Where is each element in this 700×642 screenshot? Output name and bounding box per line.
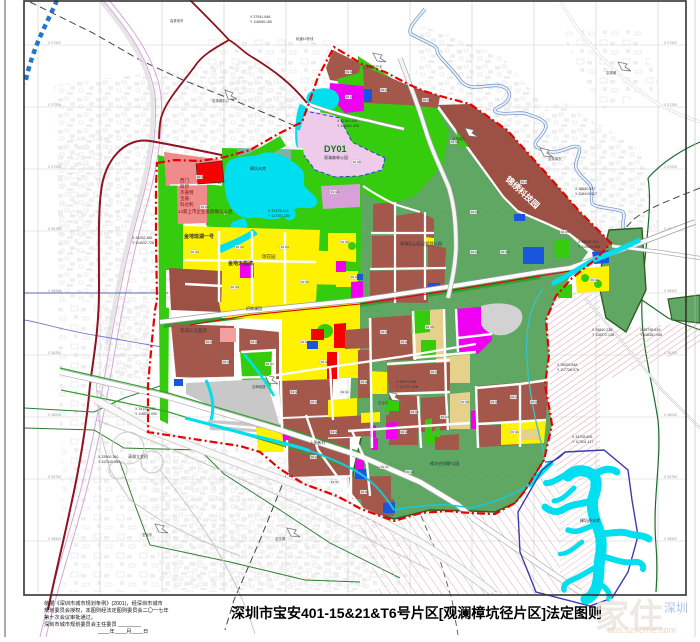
svg-text:樟坑径水库: 樟坑径水库: [580, 517, 600, 523]
svg-text:R2 G1: R2 G1: [321, 360, 330, 364]
svg-text:R2 G1: R2 G1: [301, 340, 310, 344]
svg-text:Y 114512.728: Y 114512.728: [132, 241, 154, 245]
svg-text:R2 G1: R2 G1: [471, 210, 480, 214]
svg-text:樟坑径郊野公园: 樟坑径郊野公园: [430, 460, 459, 467]
svg-text:观澜森林公园: 观澜森林公园: [324, 154, 348, 160]
svg-text:R2 G1: R2 G1: [401, 340, 410, 344]
svg-text:深圳市城市规划委员会主任委员 ________: 深圳市城市规划委员会主任委员 ________: [44, 620, 141, 628]
svg-text:R2 G1: R2 G1: [441, 415, 450, 419]
svg-text:R2 G1: R2 G1: [501, 250, 510, 254]
svg-text:Y 116069.150: Y 116069.150: [250, 20, 272, 24]
svg-text:X 36250: X 36250: [48, 351, 61, 355]
svg-text:高铁电车: 高铁电车: [170, 18, 184, 23]
svg-text:至观澜中心: 至观澜中心: [212, 98, 230, 103]
svg-text:瑞花园: 瑞花园: [262, 253, 276, 260]
svg-text:Y 117611.117: Y 117611.117: [572, 440, 594, 444]
svg-text:依据《深圳市城市规划条例》(2001)，经深圳市城市: 依据《深圳市城市规划条例》(2001)，经深圳市城市: [44, 599, 163, 607]
svg-text:第十次会议审批通过。: 第十次会议审批通过。: [44, 613, 96, 621]
svg-text:至观澜东: 至观澜东: [452, 136, 466, 141]
svg-text:R2 G1: R2 G1: [511, 430, 520, 434]
svg-text:上围新村: 上围新村: [310, 440, 325, 445]
svg-text:R2 G1: R2 G1: [346, 95, 355, 99]
svg-text:清湖立交桥: 清湖立交桥: [128, 453, 148, 459]
svg-text:R2 G1: R2 G1: [251, 340, 260, 344]
svg-text:X 35500: X 35500: [664, 537, 677, 541]
svg-text:X 37000: X 37000: [48, 165, 61, 169]
svg-text:Y 116070.090: Y 116070.090: [135, 412, 157, 416]
svg-text:X 37160.448: X 37160.448: [337, 119, 357, 123]
svg-text:X 34192.232: X 34192.232: [135, 407, 155, 411]
svg-text:R2 G1: R2 G1: [191, 250, 200, 254]
svg-text:X 34052.485: X 34052.485: [132, 236, 152, 240]
svg-text:Y 117727.426: Y 117727.426: [396, 385, 418, 389]
svg-text:R2 G1: R2 G1: [223, 360, 232, 364]
svg-text:14家上市企业总部确认入驻: 14家上市企业总部确认入驻: [178, 208, 233, 215]
svg-text:R2 G1: R2 G1: [236, 245, 245, 249]
svg-text:X 35750: X 35750: [48, 475, 61, 479]
svg-text:X 36500: X 36500: [48, 289, 61, 293]
svg-text:至观澜东: 至观澜东: [548, 156, 562, 161]
svg-text:X 36000: X 36000: [48, 413, 61, 417]
svg-text:华润三九医药: 华润三九医药: [180, 327, 207, 334]
svg-text:至梅观路: 至梅观路: [252, 384, 266, 389]
svg-text:Y 117201.150: Y 117201.150: [268, 214, 290, 218]
svg-text:R2 G1: R2 G1: [406, 470, 415, 474]
svg-text:Y 118072.128: Y 118072.128: [592, 333, 614, 337]
svg-text:X 35065.304: X 35065.304: [578, 240, 598, 244]
svg-text:宝嘉·: 宝嘉·: [180, 195, 191, 202]
svg-text:R2 G1: R2 G1: [231, 285, 240, 289]
svg-text:DY01: DY01: [324, 144, 347, 154]
svg-text:X 36750: X 36750: [48, 227, 61, 231]
svg-text:R2 G1: R2 G1: [266, 362, 275, 366]
svg-text:至龙华: 至龙华: [142, 532, 153, 537]
svg-text:R2 G1: R2 G1: [301, 280, 310, 284]
svg-text:X 37250: X 37250: [48, 103, 61, 107]
svg-text:Y 118381.198: Y 118381.198: [640, 333, 662, 337]
svg-text:X 35736.619: X 35736.619: [640, 328, 660, 332]
svg-text:____年____月____日: ____年____月____日: [97, 627, 148, 635]
svg-text:R2 G1: R2 G1: [361, 490, 370, 494]
svg-text:R2 G1: R2 G1: [491, 400, 500, 404]
svg-text:金地天悦湾: 金地天悦湾: [227, 260, 253, 267]
svg-text:轨道10号线: 轨道10号线: [296, 36, 314, 41]
svg-text:R2 G1: R2 G1: [591, 278, 600, 282]
svg-text:R2 G1: R2 G1: [311, 400, 320, 404]
svg-text:观澜石山远足郊野公园: 观澜石山远足郊野公园: [400, 240, 442, 247]
svg-text:X 37941.848: X 37941.848: [250, 15, 270, 19]
svg-text:R2 G1: R2 G1: [206, 340, 215, 344]
svg-text:X 35810.235: X 35810.235: [592, 328, 612, 332]
svg-text:Y 114562.908: Y 114562.908: [337, 124, 359, 128]
svg-text:X 35029.848: X 35029.848: [557, 363, 577, 367]
svg-text:规划委员会授权，本图则经法定图则委员会二〇一七年: 规划委员会授权，本图则经法定图则委员会二〇一七年: [44, 606, 169, 614]
svg-text:R2 G1: R2 G1: [561, 230, 570, 234]
svg-text:R2 G1: R2 G1: [346, 70, 355, 74]
svg-text:X 35500: X 35500: [48, 537, 61, 541]
svg-text:R2 G1: R2 G1: [361, 380, 370, 384]
svg-text:R2 G1: R2 G1: [331, 480, 340, 484]
svg-text:Y 119419.206: Y 119419.206: [578, 245, 600, 249]
svg-text:X 37479.413: X 37479.413: [268, 209, 288, 213]
svg-text:X 33900.360: X 33900.360: [98, 455, 118, 459]
svg-text:X 36500: X 36500: [664, 289, 677, 293]
svg-text:X 36520.537: X 36520.537: [575, 187, 595, 191]
svg-text:R2 G1: R2 G1: [311, 455, 320, 459]
svg-text:R2 G1: R2 G1: [531, 400, 540, 404]
svg-text:招商澜园: 招商澜园: [246, 305, 262, 311]
svg-text:R2 G1: R2 G1: [341, 240, 350, 244]
svg-text:R2 G1: R2 G1: [331, 190, 340, 194]
svg-text:科达利: 科达利: [180, 201, 194, 208]
svg-text:金地珑湖一号: 金地珑湖一号: [183, 233, 214, 240]
svg-text:R2 G1: R2 G1: [426, 325, 435, 329]
svg-text:X 37500: X 37500: [48, 41, 61, 45]
svg-text:R2 G1: R2 G1: [461, 400, 470, 404]
svg-text:bbs.szhome.com: bbs.szhome.com: [608, 625, 676, 635]
svg-text:Y 117140.939: Y 117140.939: [98, 460, 120, 464]
svg-text:R2 G1: R2 G1: [353, 160, 362, 164]
svg-text:X 37500: X 37500: [664, 41, 677, 45]
svg-text:R2 G1: R2 G1: [291, 390, 300, 394]
svg-text:R2 G1: R2 G1: [471, 250, 480, 254]
svg-text:R2 G1: R2 G1: [381, 88, 390, 92]
svg-text:R2 G1: R2 G1: [431, 370, 440, 374]
svg-text:至龙华: 至龙华: [378, 400, 389, 405]
svg-text:R2 G1: R2 G1: [381, 465, 390, 469]
svg-text:至平湖: 至平湖: [275, 536, 286, 541]
svg-text:至观澜高尔夫: 至观澜高尔夫: [362, 64, 383, 69]
svg-text:R2 G1: R2 G1: [411, 410, 420, 414]
svg-text:R2 G1: R2 G1: [521, 180, 530, 184]
svg-text:R2 G1: R2 G1: [281, 245, 290, 249]
svg-text:R2 G1: R2 G1: [341, 390, 350, 394]
svg-text:樟坑水库: 樟坑水库: [250, 165, 266, 171]
svg-text:至观澜: 至观澜: [606, 70, 617, 75]
svg-text:X 37000: X 37000: [664, 165, 677, 169]
svg-text:X 37250: X 37250: [664, 103, 677, 107]
svg-text:R2 G1: R2 G1: [331, 430, 340, 434]
svg-text:X 36000: X 36000: [664, 413, 677, 417]
svg-text:R2 G1: R2 G1: [381, 330, 390, 334]
svg-text:R2 G1: R2 G1: [423, 98, 432, 102]
svg-text:杰嘉特: 杰嘉特: [180, 189, 194, 196]
svg-text:联塑: 联塑: [180, 183, 189, 190]
svg-text:R2 G1: R2 G1: [401, 430, 410, 434]
svg-text:深圳: 深圳: [664, 601, 688, 615]
svg-text:X 35750: X 35750: [664, 475, 677, 479]
svg-text:西门: 西门: [180, 177, 189, 184]
svg-text:深圳市宝安401-15&21&T6号片区[观澜樟坑径片区]法: 深圳市宝安401-15&21&T6号片区[观澜樟坑径片区]法定图则: [231, 605, 602, 621]
svg-text:Y 117726.976: Y 117726.976: [557, 368, 579, 372]
svg-text:R2 G1: R2 G1: [511, 395, 520, 399]
svg-text:X 34708.626: X 34708.626: [572, 435, 592, 439]
svg-text:R2 G1: R2 G1: [351, 275, 360, 279]
svg-text:Y 118419.517: Y 118419.517: [575, 192, 597, 196]
svg-text:R2 G1: R2 G1: [197, 175, 206, 179]
svg-text:X 36737.896: X 36737.896: [396, 380, 416, 384]
